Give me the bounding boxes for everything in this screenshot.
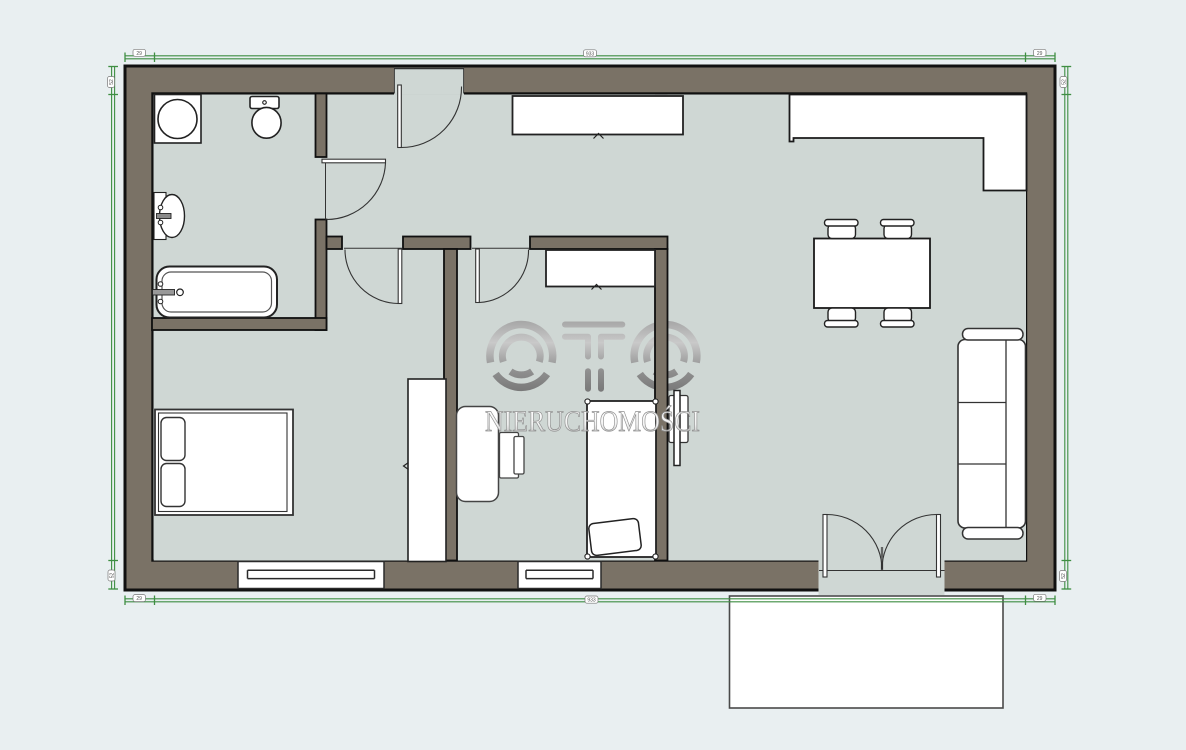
- svg-text:933: 933: [586, 51, 595, 57]
- svg-text:NIERUCHOMOŚCI: NIERUCHOMOŚCI: [485, 405, 700, 438]
- svg-text:29: 29: [136, 51, 142, 57]
- svg-text:933: 933: [587, 598, 596, 604]
- svg-text:52: 52: [1061, 573, 1067, 579]
- svg-text:29: 29: [1037, 51, 1043, 57]
- svg-text:52: 52: [1062, 79, 1068, 85]
- svg-text:52: 52: [109, 79, 115, 85]
- svg-text:29: 29: [136, 596, 142, 602]
- svg-text:52: 52: [110, 573, 116, 579]
- svg-text:29: 29: [1037, 596, 1043, 602]
